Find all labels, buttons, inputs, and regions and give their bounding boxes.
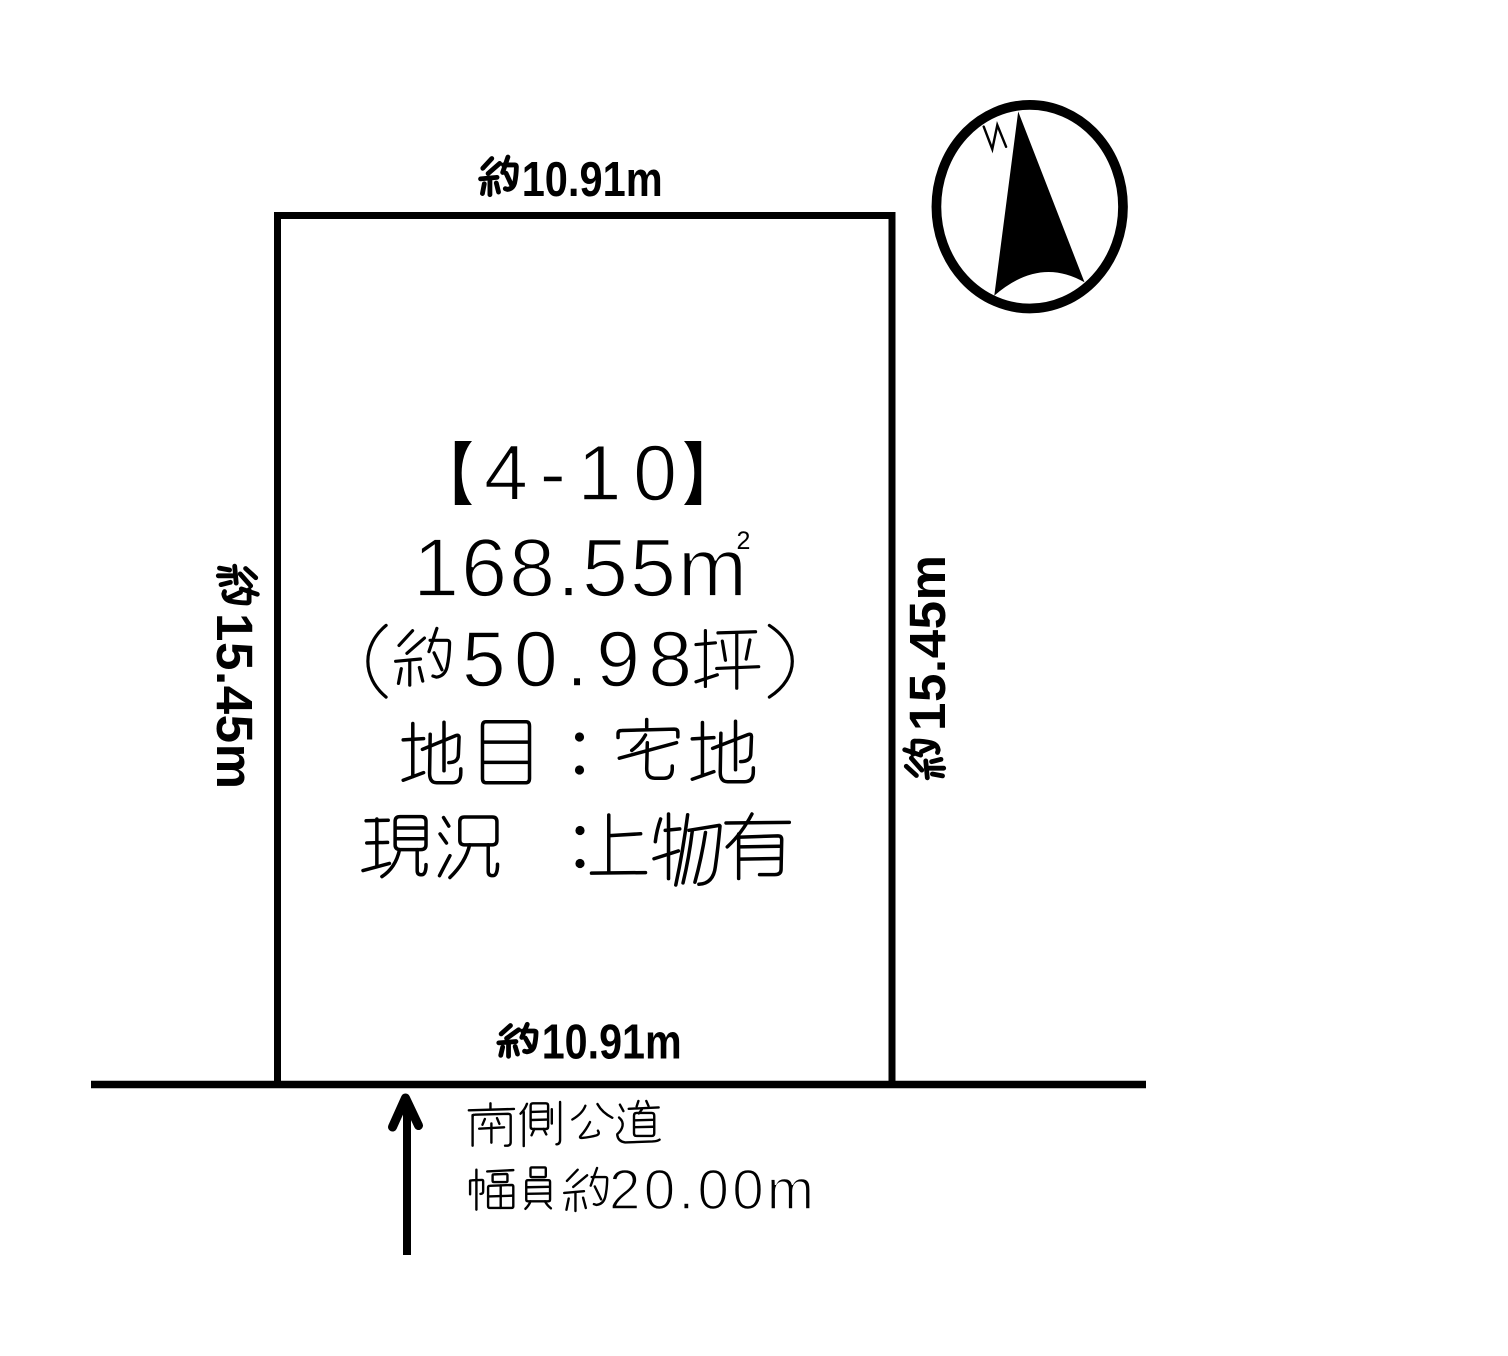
svg-text:50.98: 50.98	[462, 615, 692, 703]
svg-text:168.55m: 168.55m	[413, 521, 747, 614]
svg-text:15.45m: 15.45m	[206, 613, 263, 789]
svg-text:15.45m: 15.45m	[899, 555, 956, 731]
svg-text:10.91m: 10.91m	[542, 1016, 682, 1070]
svg-text:4-10: 4-10	[484, 428, 677, 517]
svg-text:20.00m: 20.00m	[609, 1158, 814, 1221]
svg-text:10.91m: 10.91m	[522, 153, 663, 207]
svg-text:2: 2	[737, 527, 751, 555]
